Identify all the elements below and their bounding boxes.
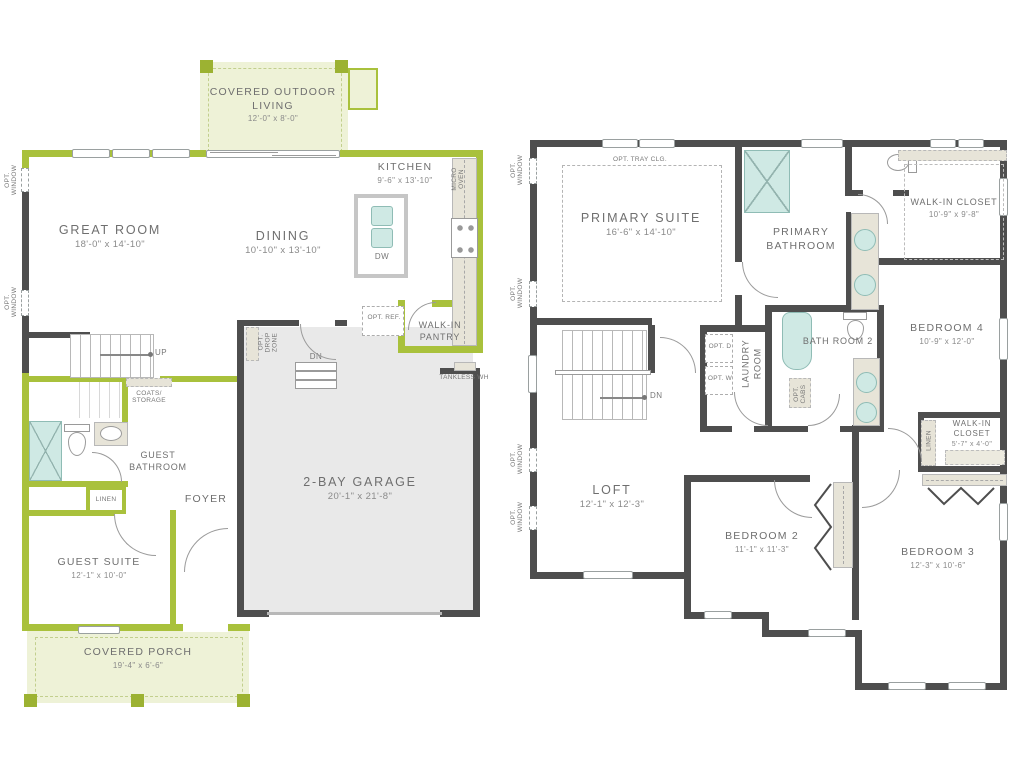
stair-landing bbox=[555, 370, 651, 375]
sink-fixture bbox=[856, 402, 877, 423]
opt-window-wrap: OPT. WINDOW bbox=[0, 158, 34, 204]
wall-segment bbox=[22, 373, 29, 630]
linen-label: LINEN bbox=[90, 496, 122, 503]
bifold-door-icon bbox=[813, 484, 833, 570]
closet-rod-line bbox=[926, 480, 1003, 481]
opt-window-label: OPT. WINDOW bbox=[510, 494, 524, 540]
stair-direction-dot bbox=[642, 395, 647, 400]
porch-post bbox=[237, 694, 250, 707]
bedroom3-label: BEDROOM 3 12'-3" x 10'-6" bbox=[878, 546, 998, 570]
window bbox=[801, 139, 843, 148]
door-arc bbox=[808, 394, 840, 426]
garage-floor bbox=[244, 327, 473, 615]
wall-segment bbox=[537, 318, 652, 325]
tankless-wh-label: TANKLESS WH bbox=[436, 374, 492, 381]
stairs bbox=[562, 330, 647, 420]
wall-segment bbox=[473, 374, 480, 617]
shower-fixture bbox=[29, 421, 62, 481]
window bbox=[808, 629, 846, 637]
guest-bathroom-label: GUEST BATHROOM bbox=[112, 450, 204, 473]
window bbox=[152, 149, 190, 158]
sliding-door-panel bbox=[210, 152, 278, 153]
door-arc bbox=[862, 470, 900, 508]
sink-fixture bbox=[371, 228, 393, 248]
toilet-tank bbox=[64, 424, 90, 432]
shower-fixture bbox=[744, 150, 790, 213]
dn-label: DN bbox=[650, 391, 676, 400]
range-fixture bbox=[451, 218, 478, 258]
door-arc bbox=[742, 262, 778, 298]
closet-rod-line bbox=[843, 486, 844, 564]
bedroom2-label: BEDROOM 2 11'-1" x 11'-3" bbox=[702, 530, 822, 554]
toilet-tank bbox=[843, 312, 867, 320]
window bbox=[930, 139, 956, 148]
bifold-door-icon bbox=[928, 488, 994, 506]
opt-window-wrap: OPT. WINDOW bbox=[494, 148, 540, 194]
door-arc bbox=[660, 337, 696, 373]
opt-window-label: OPT. WINDOW bbox=[510, 436, 524, 482]
door-arc bbox=[184, 528, 228, 572]
window bbox=[583, 571, 633, 579]
sliding-door-panel bbox=[272, 155, 336, 156]
wall-segment bbox=[855, 630, 862, 690]
sink-fixture bbox=[371, 206, 393, 226]
wall-segment bbox=[918, 466, 1007, 472]
porch-post bbox=[131, 694, 144, 707]
door-arc bbox=[114, 514, 156, 556]
sink-fixture bbox=[854, 274, 876, 296]
wall-segment bbox=[735, 147, 742, 262]
laundry-label-wrap: LAUNDRY ROOM bbox=[712, 322, 792, 402]
opt-window-wrap: OPT. WINDOW bbox=[494, 495, 540, 541]
wall-segment bbox=[768, 426, 808, 432]
door-arc bbox=[408, 302, 436, 330]
step bbox=[295, 362, 337, 371]
wall-segment bbox=[918, 412, 1007, 418]
window bbox=[78, 626, 120, 634]
covered-porch-label: COVERED PORCH 19'-4" x 6'-6" bbox=[78, 646, 198, 670]
coats-storage-label: COATS/ STORAGE bbox=[121, 390, 177, 404]
great-room-label: GREAT ROOM 18'-0" x 14'-10" bbox=[50, 222, 170, 250]
guest-suite-label: GUEST SUITE 12'-1" x 10'-0" bbox=[40, 556, 158, 580]
floor-plan-canvas: DW MICRO OVEN OPT. REF. WALK-IN PANTRY T… bbox=[0, 0, 1024, 768]
wall-segment bbox=[648, 325, 655, 373]
wall-segment bbox=[22, 192, 29, 290]
walk-in-closet2-label: WALK-IN CLOSET 5'-7" x 4'-0" bbox=[938, 419, 1006, 448]
sink-fixture bbox=[854, 229, 876, 251]
drop-zone-label: OPT. DROP ZONE bbox=[258, 325, 279, 361]
window bbox=[639, 139, 675, 148]
closet-shelf bbox=[898, 150, 1007, 161]
window bbox=[112, 149, 150, 158]
wall-segment bbox=[684, 475, 691, 619]
kitchen-label: KITCHEN 9'-6" x 13'-10" bbox=[353, 161, 457, 185]
garage-door-line bbox=[267, 612, 442, 615]
window bbox=[602, 139, 638, 148]
outdoor-living-label: COVERED OUTDOOR LIVING 12'-0" x 8'-0" bbox=[203, 86, 343, 123]
window bbox=[888, 682, 926, 690]
foyer-label: FOYER bbox=[176, 493, 236, 507]
window bbox=[999, 503, 1008, 541]
up-label: UP bbox=[155, 348, 179, 357]
bedroom4-label: BEDROOM 4 10'-9" x 12'-0" bbox=[887, 322, 1007, 346]
linen-label: LINEN bbox=[926, 423, 933, 459]
loft-label: LOFT 12'-1" x 12'-3" bbox=[552, 482, 672, 510]
wall-segment bbox=[845, 147, 852, 192]
primary-bathroom-label: PRIMARY BATHROOM bbox=[746, 226, 856, 253]
garage-label: 2-BAY GARAGE 20'-1" x 21'-8" bbox=[298, 474, 422, 502]
dining-label: DINING 10'-10" x 13'-10" bbox=[223, 228, 343, 256]
opt-window-label: OPT. WINDOW bbox=[510, 270, 524, 316]
wall-segment bbox=[440, 610, 480, 617]
door-arc bbox=[774, 480, 812, 518]
closet-shelf bbox=[945, 450, 1005, 465]
window bbox=[704, 611, 732, 619]
window bbox=[948, 682, 986, 690]
wall-segment bbox=[852, 425, 859, 620]
stair-direction-line bbox=[100, 354, 150, 356]
tankless-wh-fixture bbox=[454, 362, 476, 371]
front-door-opening bbox=[183, 624, 228, 632]
wall-segment bbox=[700, 426, 732, 432]
step bbox=[295, 371, 337, 380]
linen-closet: LINEN bbox=[86, 486, 126, 514]
sink-fixture bbox=[856, 372, 877, 393]
stair-direction-dot bbox=[148, 352, 153, 357]
bath-room2-label: BATH ROOM 2 bbox=[800, 336, 876, 348]
wall-segment bbox=[840, 426, 878, 432]
porch-post bbox=[200, 60, 213, 73]
walk-in-closet1-label: WALK-IN CLOSET 10'-9" x 9'-8" bbox=[899, 197, 1009, 219]
wall-segment bbox=[335, 320, 347, 326]
laundry-room-label: LAUNDRY ROOM bbox=[740, 334, 763, 394]
wall-segment bbox=[398, 346, 483, 353]
porch-post bbox=[335, 60, 348, 73]
window bbox=[72, 149, 110, 158]
stairs-below bbox=[70, 382, 128, 418]
dishwasher-label: DW bbox=[363, 252, 401, 261]
opt-window-label: OPT. WINDOW bbox=[510, 147, 524, 193]
opt-cabs-label: OPT. CABS bbox=[793, 376, 807, 412]
primary-suite-label: PRIMARY SUITE 16'-6" x 14'-10" bbox=[576, 210, 706, 238]
toilet-bowl bbox=[68, 432, 86, 456]
window bbox=[958, 139, 984, 148]
coats-shelf bbox=[126, 378, 172, 387]
door-arc bbox=[858, 194, 888, 224]
wall-segment bbox=[170, 510, 176, 631]
opt-window-wrap: OPT. WINDOW bbox=[0, 280, 34, 326]
outdoor-living-bump bbox=[348, 68, 378, 110]
drop-zone-label-wrap: OPT. DROP ZONE bbox=[246, 322, 290, 366]
opt-window-label: OPT. WINDOW bbox=[4, 279, 18, 325]
wall-segment bbox=[237, 320, 244, 617]
opt-window-wrap: OPT. WINDOW bbox=[494, 437, 540, 483]
window bbox=[528, 355, 537, 393]
wall-segment bbox=[237, 610, 269, 617]
tray-ceiling-label: OPT. TRAY CLG. bbox=[590, 156, 690, 163]
step bbox=[295, 380, 337, 389]
opt-window-label: OPT. WINDOW bbox=[4, 157, 18, 203]
porch-post bbox=[24, 694, 37, 707]
stairs bbox=[70, 334, 154, 378]
opt-window-wrap: OPT. WINDOW bbox=[494, 271, 540, 317]
sink-fixture bbox=[100, 426, 122, 441]
stair-direction-line bbox=[600, 397, 644, 399]
